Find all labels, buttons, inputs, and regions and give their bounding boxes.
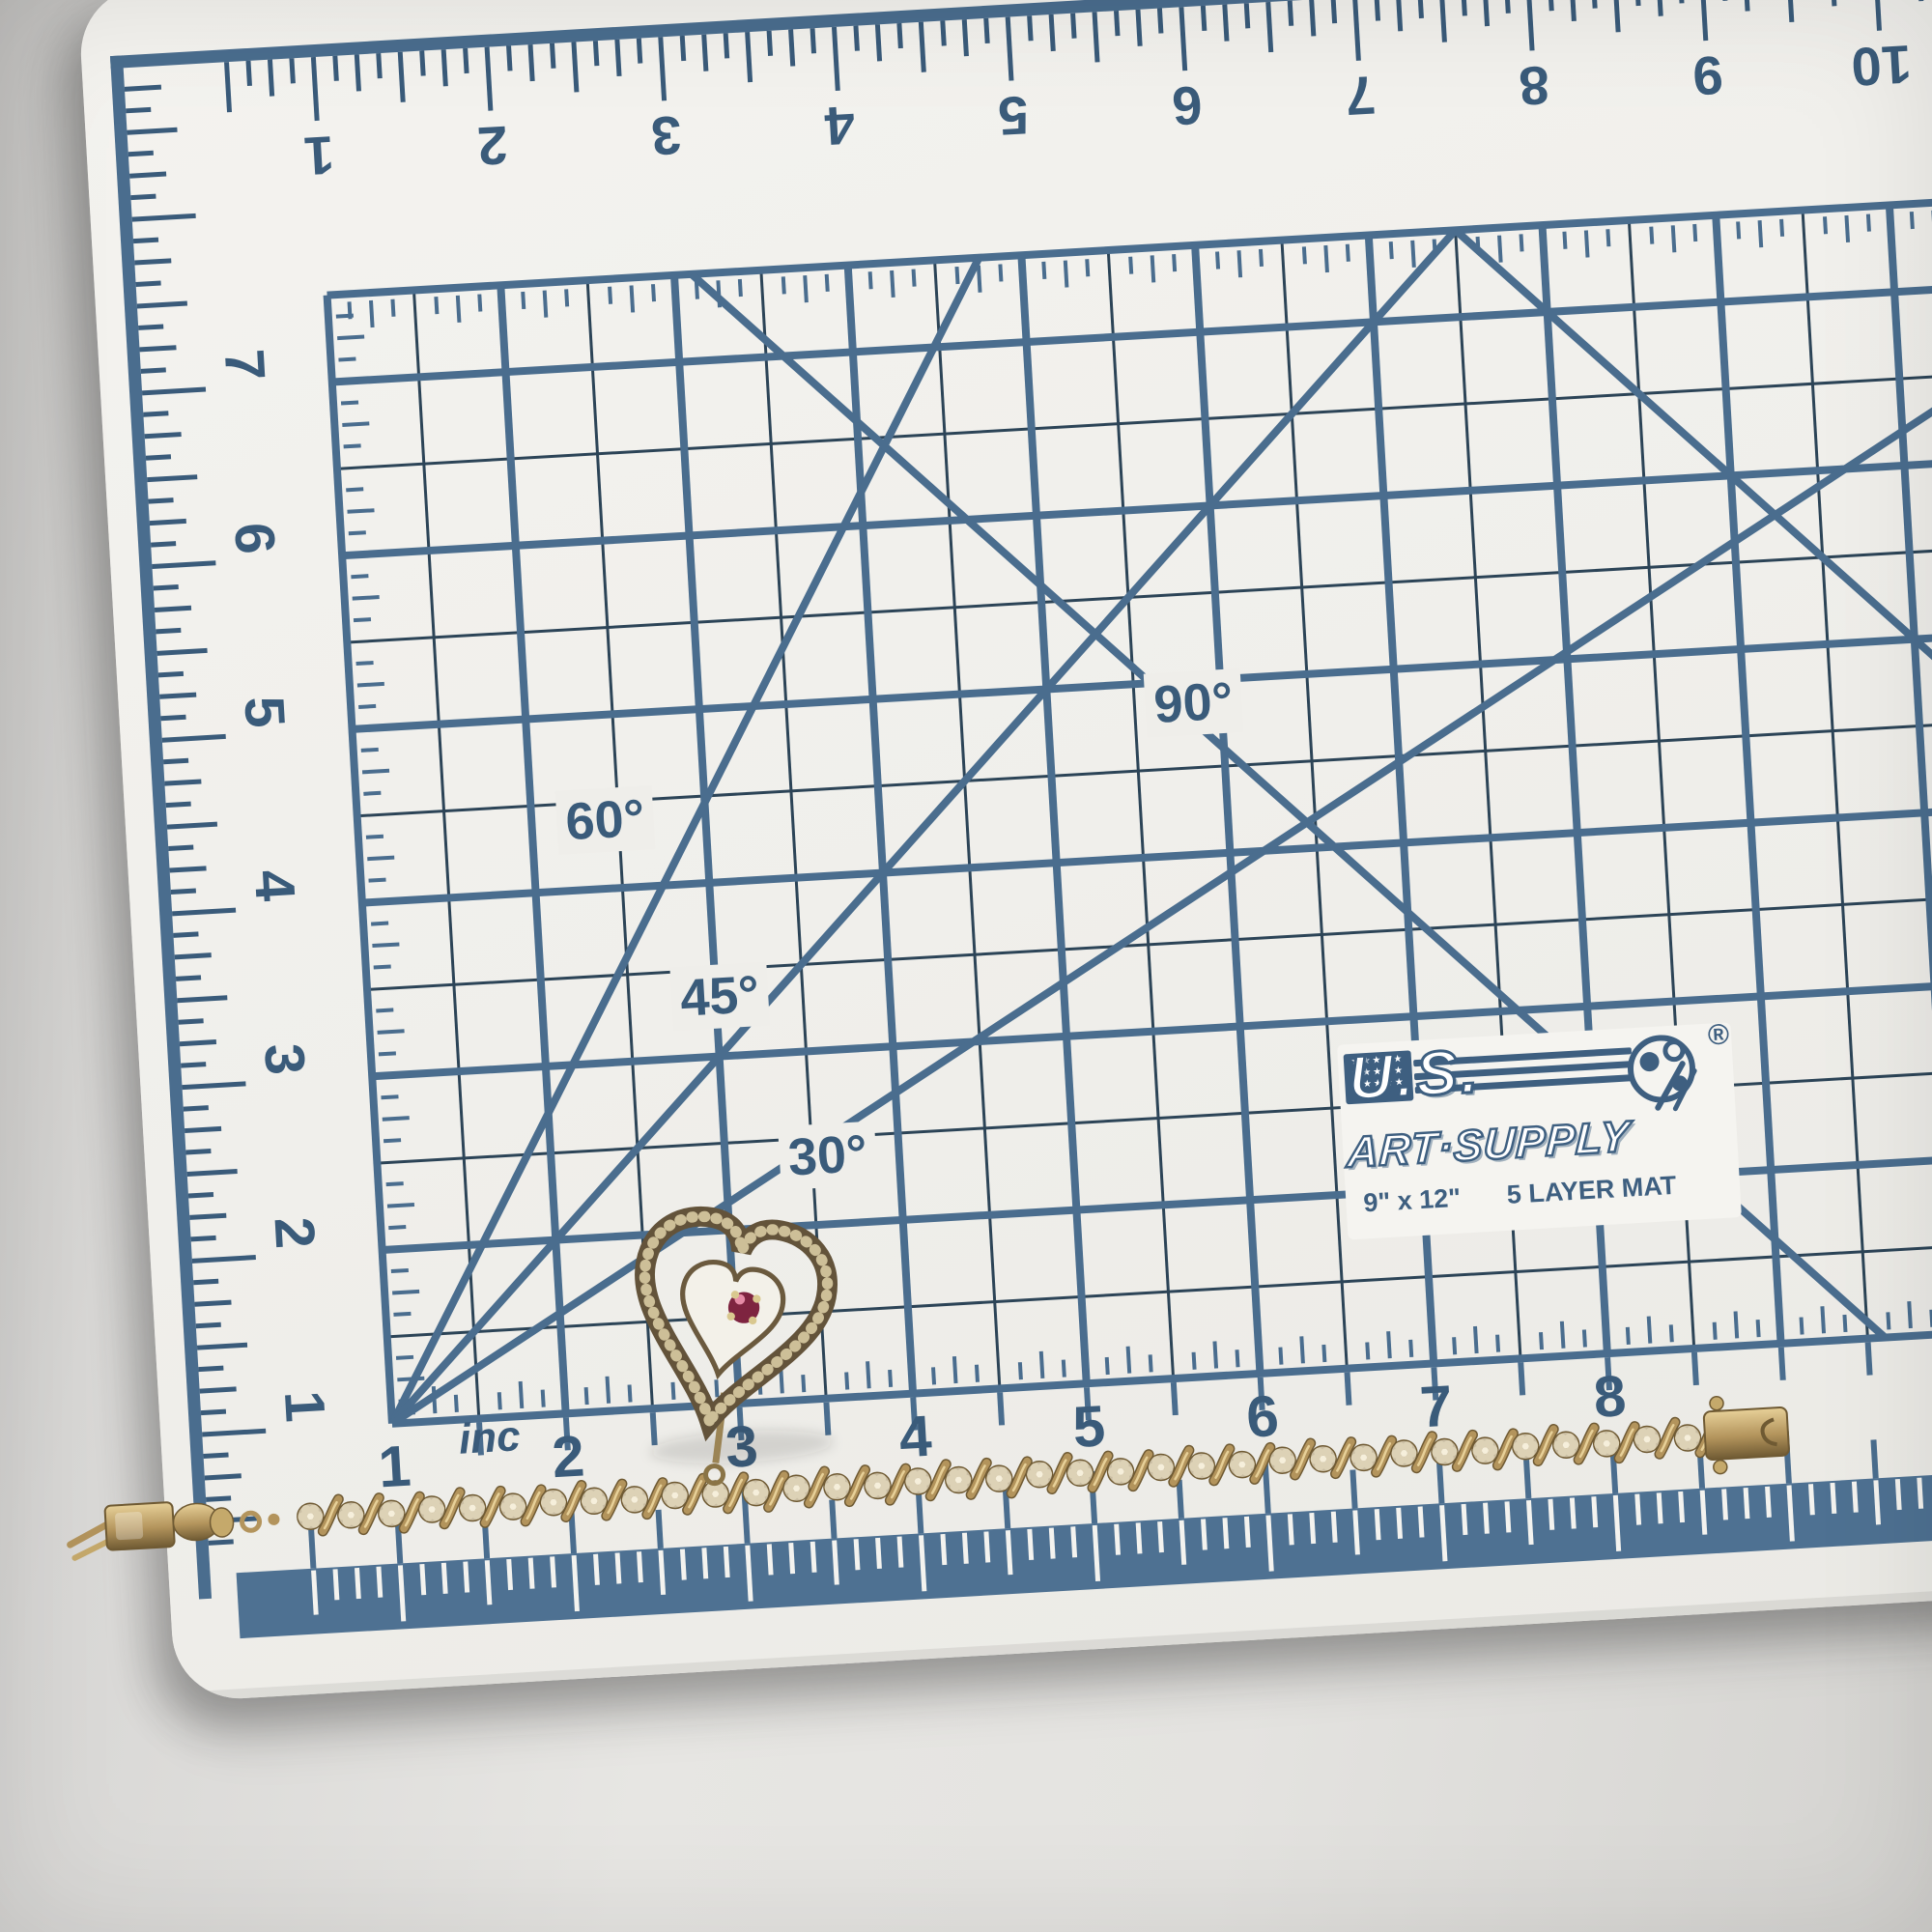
ruler-number: 7 xyxy=(1388,1373,1485,1441)
angle-label-45: 45° xyxy=(669,962,769,1032)
registered-mark: ® xyxy=(1707,1018,1730,1052)
ruler-number: 2 xyxy=(260,1184,328,1281)
ruler-number: 4 xyxy=(240,838,308,934)
logo-text-us: U.S. xyxy=(1347,1035,1483,1114)
ruler-number: 3 xyxy=(694,1412,790,1481)
angle-label-60: 60° xyxy=(555,785,655,855)
ruler-number: 2 xyxy=(444,111,541,180)
ruler-number: 6 xyxy=(219,491,288,587)
ruler-number: 8 xyxy=(1562,1362,1659,1431)
ruler-number: 9 xyxy=(1660,41,1756,109)
ruler-number: 2 xyxy=(520,1423,616,1492)
ruler-number: 7 xyxy=(210,317,278,413)
ruler-number: 1 xyxy=(270,121,367,189)
palette-icon xyxy=(1621,1026,1711,1116)
mat-layer-label: 5 LAYER MAT xyxy=(1506,1171,1677,1210)
mat-size-label: 9" x 12" xyxy=(1363,1183,1462,1219)
ruler-number: 6 xyxy=(1214,1382,1311,1451)
ruler-number: 5 xyxy=(965,81,1062,150)
photo-scene: 90° 60° 45° 30° inc 12345678910 7654321 … xyxy=(0,0,1932,1932)
ruler-number: 5 xyxy=(1041,1392,1138,1461)
ruler-number: 6 xyxy=(1139,71,1236,139)
mat-wrapper: 90° 60° 45° 30° inc 12345678910 7654321 … xyxy=(77,0,1932,1702)
ruler-number: 5 xyxy=(230,664,298,760)
ruler-number: 7 xyxy=(1313,61,1409,129)
ruler-number: 1 xyxy=(347,1433,443,1501)
ruler-number: 4 xyxy=(867,1403,964,1471)
ruler-number: 3 xyxy=(249,1011,318,1108)
ruler-number: 3 xyxy=(618,100,715,169)
angle-label-30: 30° xyxy=(778,1121,877,1190)
usartsupply-logo: ★★★★★ ★★★★★ ★★★★★ U.S. xyxy=(1337,1022,1742,1239)
ruler-number: 1 xyxy=(270,1358,338,1455)
cutting-mat: 90° 60° 45° 30° inc 12345678910 7654321 … xyxy=(77,0,1932,1702)
ruler-number: 8 xyxy=(1486,51,1582,120)
angle-label-90: 90° xyxy=(1144,668,1243,738)
ruler-number: 4 xyxy=(792,91,889,159)
mat-labels: 90° 60° 45° 30° inc 12345678910 7654321 … xyxy=(77,0,1932,1702)
inches-unit-label: inc xyxy=(458,1412,522,1464)
ruler-number: 10 xyxy=(1833,31,1930,99)
